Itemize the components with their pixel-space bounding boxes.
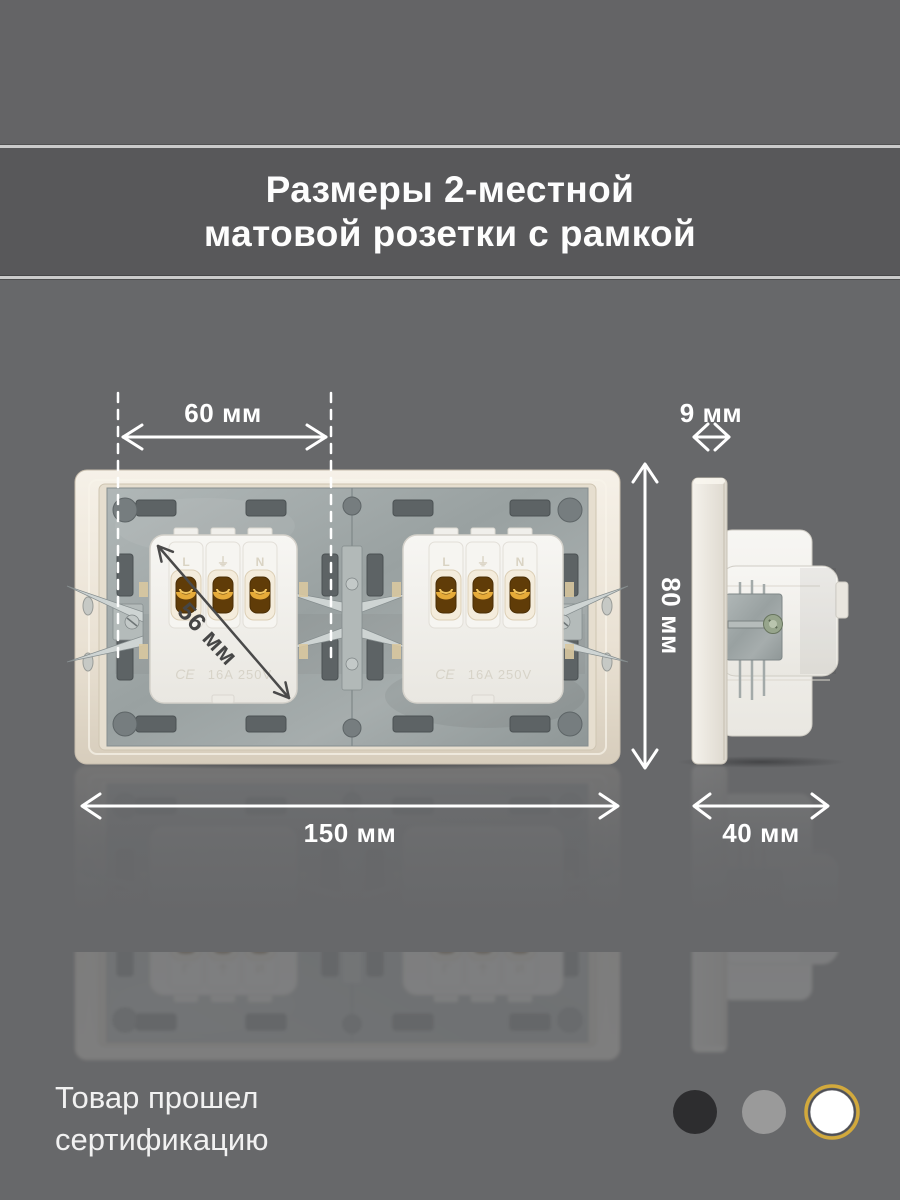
- certification-note-line2: сертификацию: [55, 1119, 268, 1161]
- certification-note-line1: Товар прошел: [55, 1077, 268, 1119]
- page-title-line1: Размеры 2-местной: [266, 168, 635, 212]
- color-swatch-white-selected: [806, 1086, 858, 1138]
- arrow-150mm: [82, 794, 618, 818]
- certification-note: Товар прошел сертификацию: [55, 1077, 268, 1161]
- top-strip: [0, 0, 900, 145]
- color-swatch-gray: [742, 1090, 786, 1134]
- dim-label-80mm: 80 мм: [658, 556, 686, 676]
- product-infographic: Размеры 2-местной матовой розетки с рамк…: [0, 0, 900, 1200]
- arrow-80mm: [633, 464, 657, 768]
- dim-label-150mm: 150 мм: [260, 818, 440, 849]
- dim-label-60mm: 60 мм: [133, 398, 313, 429]
- separator-line-bottom: [0, 276, 900, 279]
- dim-label-9mm: 9 мм: [641, 398, 781, 429]
- color-swatch-black: [673, 1090, 717, 1134]
- dim-label-40mm: 40 мм: [671, 818, 851, 849]
- arrow-40mm: [694, 794, 828, 818]
- page-title-line2: матовой розетки с рамкой: [204, 212, 696, 256]
- title-band: Размеры 2-местной матовой розетки с рамк…: [0, 148, 900, 276]
- color-options: [660, 1078, 860, 1146]
